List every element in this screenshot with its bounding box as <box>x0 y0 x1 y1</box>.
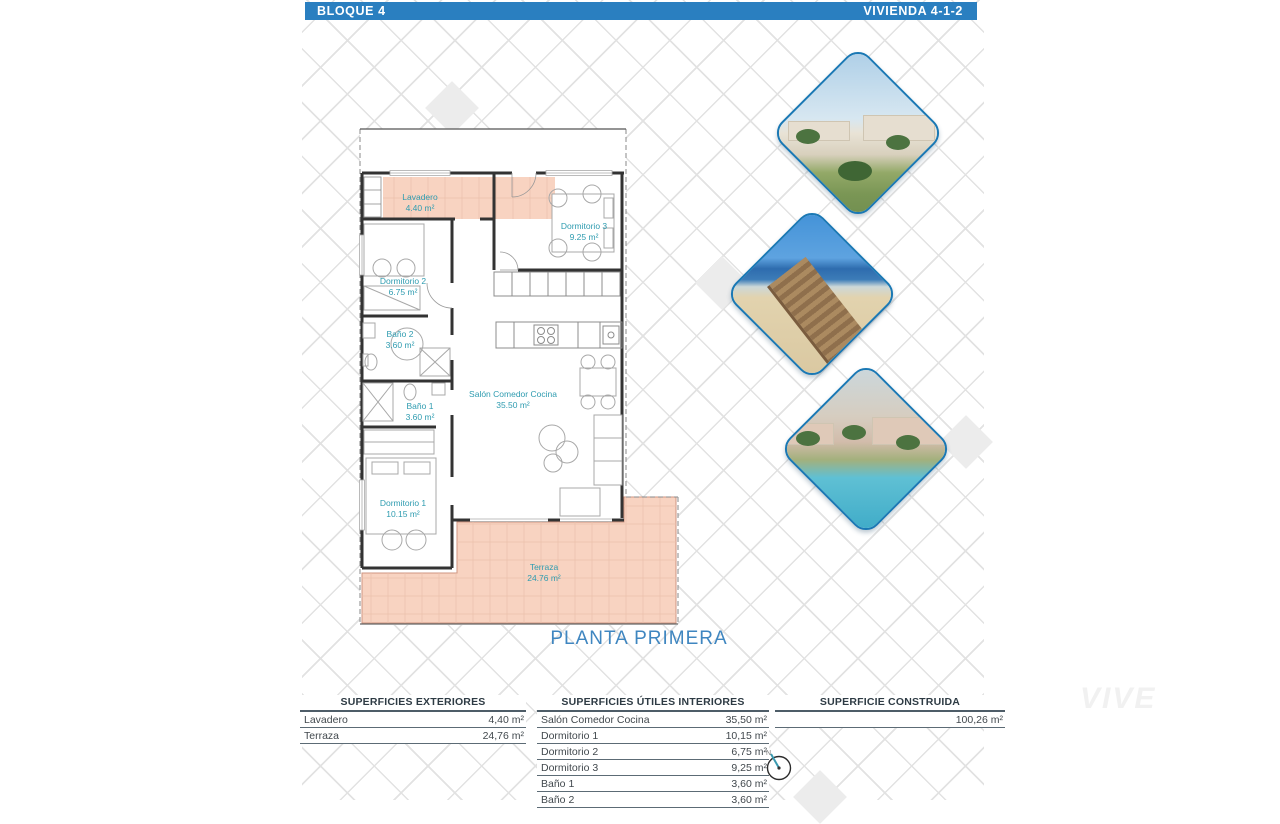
shaft <box>364 177 381 217</box>
title-bar: BLOQUE 4 VIVIENDA 4-1-2 <box>305 2 977 20</box>
room-area-lavadero: 4.40 m² <box>406 203 435 213</box>
table-row: Dormitorio 1 10,15 m² <box>537 728 769 744</box>
table-row: Salón Comedor Cocina 35,50 m² <box>537 712 769 728</box>
room-area-terraza: 24.76 m² <box>527 573 561 583</box>
vive-watermark: VIVE <box>1080 682 1156 716</box>
room-area-dormitorio-3: 9.25 m² <box>570 232 599 242</box>
table-row: Baño 2 3,60 m² <box>537 792 769 808</box>
table-title: SUPERFICIE CONSTRUIDA <box>775 695 1005 712</box>
room-area-bano-2: 3.60 m² <box>386 340 415 350</box>
room-label-bano-1: Baño 1 <box>407 401 434 411</box>
plan-title: PLANTA PRIMERA <box>548 628 730 650</box>
room-label-dormitorio-2: Dormitorio 2 <box>380 276 427 286</box>
north-compass: N <box>756 744 800 788</box>
room-area-dormitorio-2: 6.75 m² <box>389 287 418 297</box>
room-label-lavadero: Lavadero <box>402 192 438 202</box>
room-label-terraza: Terraza <box>530 562 559 572</box>
room-label-dormitorio-1: Dormitorio 1 <box>380 498 427 508</box>
filled-lattice-cell <box>793 770 847 824</box>
room-area-bano-1: 3.60 m² <box>406 412 435 422</box>
table-row: 100,26 m² <box>775 712 1005 728</box>
compass-north-label: N <box>766 750 771 757</box>
filled-lattice-cell <box>939 415 993 469</box>
room-area-salon: 35.50 m² <box>496 400 530 410</box>
room-label-bano-2: Baño 2 <box>387 329 414 339</box>
block-title: BLOQUE 4 <box>305 4 386 18</box>
table-superficie-construida: SUPERFICIE CONSTRUIDA 100,26 m² <box>775 695 1005 728</box>
table-superficies-exteriores: SUPERFICIES EXTERIORES Lavadero 4,40 m² … <box>300 695 526 744</box>
table-row: Terraza 24,76 m² <box>300 728 526 744</box>
table-row: Lavadero 4,40 m² <box>300 712 526 728</box>
dwelling-title: VIVIENDA 4-1-2 <box>863 4 977 18</box>
floor-plan: Lavadero 4.40 m² Dormitorio 3 9.25 m² Do… <box>352 96 690 662</box>
room-label-salon: Salón Comedor Cocina <box>469 389 557 399</box>
table-superficies-utiles-interiores: SUPERFICIES ÚTILES INTERIORES Salón Come… <box>537 695 769 808</box>
table-row: Baño 1 3,60 m² <box>537 776 769 792</box>
room-area-dormitorio-1: 10.15 m² <box>386 509 420 519</box>
table-title: SUPERFICIES EXTERIORES <box>300 695 526 712</box>
table-row: Dormitorio 2 6,75 m² <box>537 744 769 760</box>
table-row: Dormitorio 3 9,25 m² <box>537 760 769 776</box>
table-title: SUPERFICIES ÚTILES INTERIORES <box>537 695 769 712</box>
room-label-dormitorio-3: Dormitorio 3 <box>561 221 608 231</box>
